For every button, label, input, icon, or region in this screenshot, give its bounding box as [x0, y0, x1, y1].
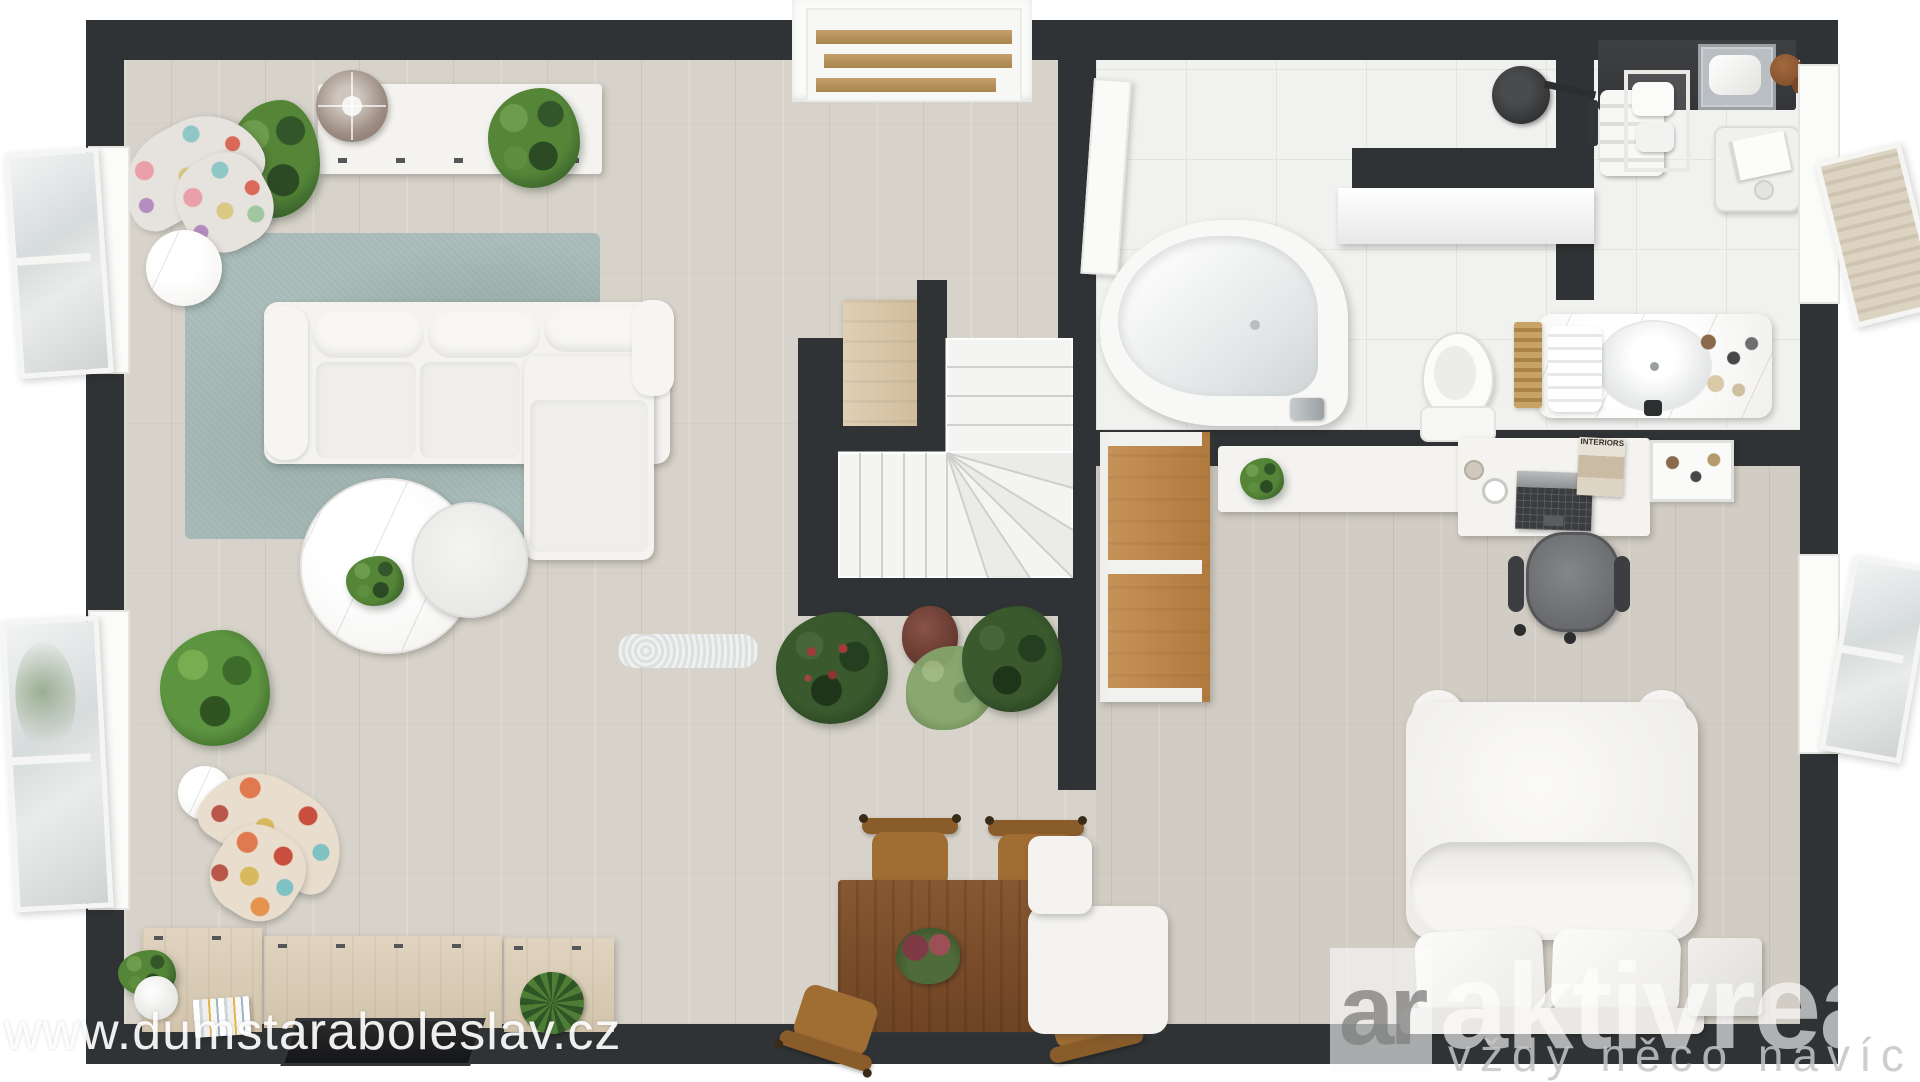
table-lamp [316, 70, 388, 142]
bathtub [1100, 220, 1348, 426]
toilet-tank [1420, 406, 1496, 442]
sideboard-handles [154, 936, 250, 940]
magazine-title: INTERIORS [1579, 437, 1625, 449]
shower-mixer [1588, 100, 1598, 146]
desk-jar [1464, 460, 1484, 480]
table-flowers [896, 928, 960, 984]
coffee-table-plant [346, 556, 404, 606]
bathtub-basin [1118, 236, 1318, 396]
vanity-towels [1548, 326, 1602, 412]
laptop-touchpad [1543, 516, 1563, 527]
sink-drain [1650, 362, 1659, 371]
hall-plant-right [962, 606, 1062, 712]
chair-wheel [1514, 624, 1526, 636]
shoe-rack-shelf [824, 54, 1012, 68]
logo-tagline: vždy něco navíc ... [1448, 1028, 1920, 1082]
window-plant-reflection [13, 640, 79, 753]
chair-post [1078, 816, 1087, 825]
office-chair [1508, 528, 1630, 640]
wardrobe-trim [1108, 688, 1202, 702]
bathtub-drain [1250, 320, 1260, 330]
chair-post [985, 816, 994, 825]
window-pane-divider [1842, 645, 1904, 664]
sofa-chaise-cushion [530, 400, 648, 552]
chair-post [862, 1067, 873, 1078]
wall-bath-halfwall [1352, 148, 1594, 192]
sofa-armrest-left [264, 306, 308, 460]
shoe-rack-shelf [816, 30, 1012, 44]
sofa-back-cushion [312, 312, 424, 358]
utility-basin [1714, 126, 1800, 212]
toilet-seat [1434, 346, 1476, 400]
lamp-arm [318, 105, 386, 107]
wardrobe-trim [1108, 560, 1202, 574]
sofa-back-cushion [428, 312, 540, 358]
side-table-top-left [146, 230, 222, 306]
coffee-mug [1482, 478, 1508, 504]
toilet [1422, 332, 1490, 440]
sofa-armrest-right [632, 300, 674, 396]
tub-faucet [1290, 398, 1324, 420]
watermark: www.dumstaraboleslav.cz [4, 1002, 621, 1062]
book-on-basin [1728, 131, 1791, 182]
magazine: INTERIORS [1577, 437, 1626, 497]
wardrobe [1100, 432, 1210, 702]
sofa-seat-cushion [420, 362, 520, 458]
floor-plan: INTERIORS www.dumstaraboleslav.cz ar akt… [0, 0, 1920, 1080]
cup [1754, 180, 1774, 200]
hall-plant-left [776, 612, 888, 724]
towel-on-rack [1636, 122, 1674, 152]
plant-bottom-left [160, 630, 270, 746]
shoe-rack-shelf [816, 78, 996, 92]
vanity-cosmetics [1694, 326, 1766, 406]
sideboard-handles [514, 946, 602, 950]
laundry-basket [1698, 44, 1776, 110]
entry-shoe-rack [806, 8, 1022, 102]
wall-stair-left [798, 338, 838, 616]
wall-stair-stub [917, 280, 947, 340]
window-pane-divider [17, 253, 91, 266]
vanity-slat-cabinet [1514, 322, 1542, 408]
desk-organizer [1650, 440, 1734, 502]
coffee-table-small [412, 502, 528, 618]
chair-wheel [1564, 632, 1576, 644]
bath-shelf [1338, 188, 1594, 244]
shelf-plant [1240, 458, 1284, 500]
wardrobe-trim [1108, 432, 1202, 446]
chair-post [859, 814, 868, 823]
chair-seat [1526, 532, 1620, 632]
chair-post [952, 814, 961, 823]
drying-rack [1624, 70, 1690, 172]
window-pane-divider [13, 753, 91, 765]
linens-in-basket [1709, 55, 1761, 95]
sink-faucet [1644, 400, 1662, 416]
bed-duvet-fold [1410, 842, 1694, 934]
towel-on-rack [1632, 82, 1674, 116]
chair-armrest [1508, 556, 1524, 612]
bedroom-bench-arm [1028, 836, 1092, 914]
hall-fluffy-rug [618, 634, 758, 668]
window-left-top-sash [4, 147, 114, 379]
logo-monogram: ar [1330, 948, 1432, 1072]
sofa-seat-cushion [316, 362, 416, 458]
berries [794, 632, 864, 698]
bedroom-bench-seat [1028, 906, 1168, 1034]
stair-cabinet [843, 300, 917, 426]
chair-armrest [1614, 556, 1630, 612]
window-left-bottom-sash [0, 616, 113, 913]
plant-top-right [488, 88, 580, 188]
sideboard-handles [278, 944, 488, 948]
shower-head [1492, 66, 1550, 124]
wall-stair-bottom [798, 578, 1096, 616]
